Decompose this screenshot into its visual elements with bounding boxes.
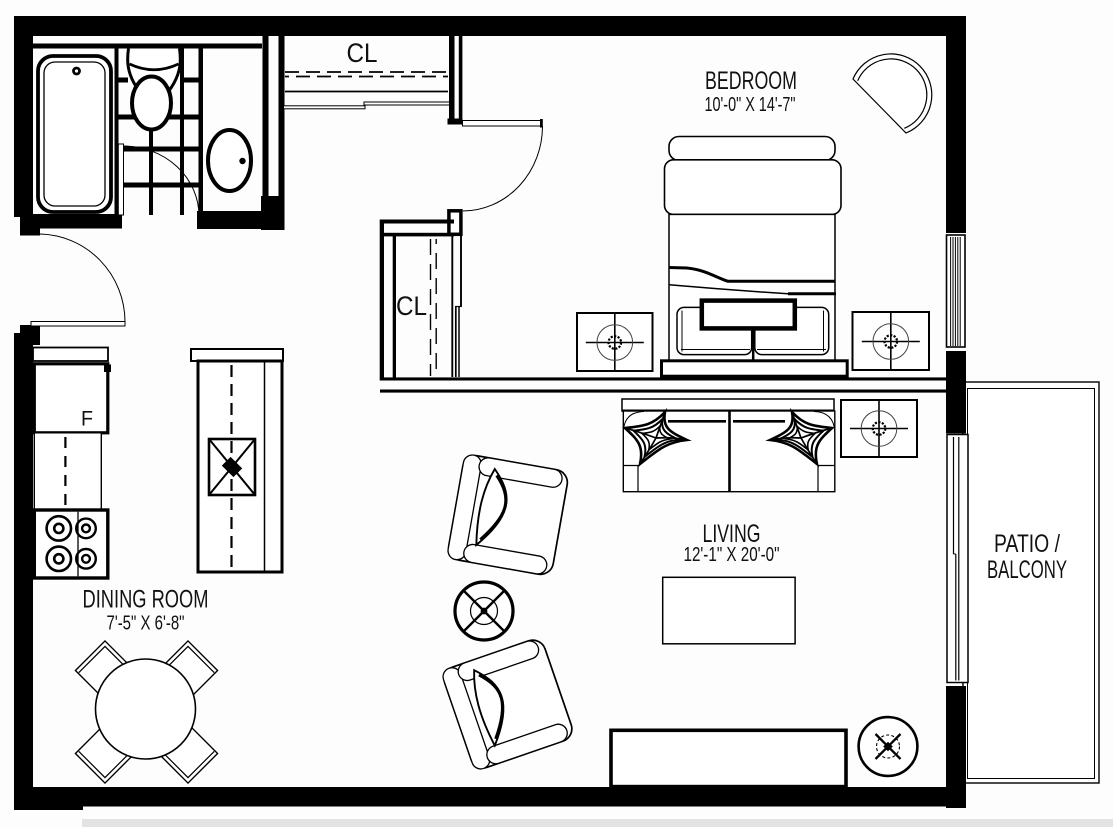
svg-text:CL: CL [347,38,378,68]
svg-text:7'-5" X 6'-8": 7'-5" X 6'-8" [107,612,185,635]
svg-text:DINING ROOM: DINING ROOM [83,586,209,614]
svg-text:F: F [81,407,93,430]
svg-text:12'-1" X 20'-0": 12'-1" X 20'-0" [684,543,780,566]
svg-text:10'-0" X 14'-7": 10'-0" X 14'-7" [705,93,796,116]
svg-text:BEDROOM: BEDROOM [705,67,797,95]
svg-text:BALCONY: BALCONY [987,556,1067,584]
svg-text:CL: CL [396,291,427,321]
svg-text:PATIO /: PATIO / [994,530,1060,558]
